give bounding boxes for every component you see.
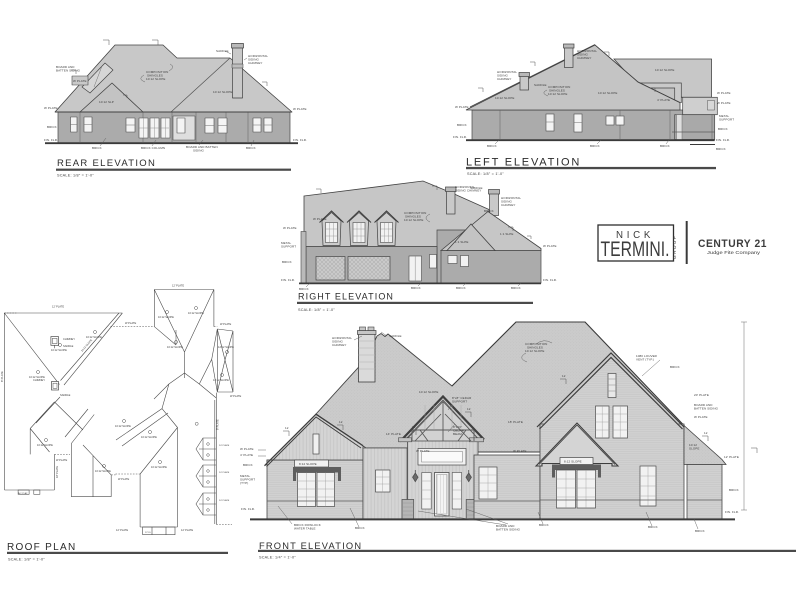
svg-text:18' PLATE: 18' PLATE — [55, 466, 59, 478]
svg-text:4' PLATE: 4' PLATE — [240, 453, 253, 457]
svg-text:LEFT ELEVATION: LEFT ELEVATION — [466, 157, 581, 169]
svg-text:FIN. FLR.: FIN. FLR. — [241, 507, 255, 511]
svg-text:12:12 SLOPE: 12:12 SLOPE — [218, 345, 234, 349]
svg-text:SCALE: 1/4" = 1'-0": SCALE: 1/4" = 1'-0" — [259, 556, 296, 560]
svg-text:TERMINI.: TERMINI. — [601, 238, 670, 261]
svg-text:BRICK: BRICK — [729, 488, 739, 492]
svg-text:W PLATE: W PLATE — [44, 106, 58, 110]
svg-text:12: 12 — [562, 374, 566, 378]
svg-text:W PLATE: W PLATE — [416, 449, 430, 453]
svg-text:CHIMNEY: CHIMNEY — [577, 56, 592, 60]
svg-text:BRICK: BRICK — [299, 287, 309, 291]
svg-text:10:12 SLOPE: 10:12 SLOPE — [29, 375, 45, 379]
svg-text:BRICK: BRICK — [670, 365, 680, 369]
svg-text:FIN. FLR.: FIN. FLR. — [44, 138, 58, 142]
svg-text:BRICK: BRICK — [246, 146, 256, 150]
svg-text:12:12 SLOPE: 12:12 SLOPE — [213, 378, 229, 382]
svg-text:4' PLATE: 4' PLATE — [657, 98, 670, 102]
svg-text:FRONT ELEVATION: FRONT ELEVATION — [259, 541, 362, 551]
svg-text:10:12 SLOPE: 10:12 SLOPE — [495, 96, 514, 100]
svg-text:W PLATE: W PLATE — [293, 107, 307, 111]
svg-text:12: 12 — [704, 431, 708, 435]
svg-text:W PLATE: W PLATE — [513, 449, 527, 453]
svg-text:SUPPORT: SUPPORT — [281, 244, 296, 248]
svg-text:ROOF PLAN: ROOF PLAN — [7, 542, 77, 553]
svg-text:10:12 SLOPE: 10:12 SLOPE — [213, 90, 232, 94]
svg-text:10:12 SLOPE: 10:12 SLOPE — [188, 311, 204, 315]
svg-text:WATER TABLE: WATER TABLE — [294, 526, 316, 530]
svg-text:10:12 SLOPE: 10:12 SLOPE — [141, 435, 157, 439]
svg-text:BRICK: BRICK — [695, 529, 705, 533]
svg-text:12' PLATE: 12' PLATE — [172, 284, 184, 288]
svg-text:W PLATE: W PLATE — [717, 101, 731, 105]
svg-text:W PLATE: W PLATE — [220, 322, 231, 326]
svg-text:W PLATE: W PLATE — [717, 91, 731, 95]
svg-text:10:12 SLOPE: 10:12 SLOPE — [37, 443, 53, 447]
svg-text:Judge Fite Company: Judge Fite Company — [707, 250, 761, 256]
svg-text:10:12 SLOPE: 10:12 SLOPE — [525, 349, 544, 353]
svg-text:W PLATE: W PLATE — [240, 447, 254, 451]
svg-text:10:12 SLOPE: 10:12 SLOPE — [548, 92, 567, 96]
svg-text:CHIMNEY: CHIMNEY — [248, 61, 263, 65]
svg-text:12' PLATE: 12' PLATE — [52, 305, 64, 309]
svg-text:SADDLE: SADDLE — [60, 393, 71, 397]
svg-text:BRICK: BRICK — [92, 146, 102, 150]
svg-text:A/C PLAT.: A/C PLAT. — [18, 492, 28, 495]
svg-text:SCALE: 1/8" = 1'-0": SCALE: 1/8" = 1'-0" — [8, 558, 45, 562]
svg-text:VENT (TYP.): VENT (TYP.) — [636, 357, 654, 361]
svg-text:12: 12 — [339, 420, 343, 424]
svg-text:24' PLATE: 24' PLATE — [219, 444, 230, 447]
svg-text:SCALE: 1/8" = 1'-0": SCALE: 1/8" = 1'-0" — [57, 174, 94, 178]
svg-text:12' PLATE: 12' PLATE — [181, 528, 193, 532]
svg-text:BRICK: BRICK — [484, 209, 494, 213]
svg-text:(TYP): (TYP) — [240, 481, 248, 485]
svg-text:BRICK: BRICK — [456, 286, 466, 290]
svg-text:SADDLE: SADDLE — [534, 83, 547, 87]
svg-text:BRICK: BRICK — [355, 526, 365, 530]
svg-text:12' PLATE: 12' PLATE — [724, 455, 739, 459]
svg-text:12: 12 — [285, 426, 289, 430]
svg-text:SADDLE: SADDLE — [63, 344, 74, 348]
svg-text:W PLATE: W PLATE — [455, 105, 469, 109]
svg-text:10:12 SLOPE: 10:12 SLOPE — [51, 348, 67, 352]
svg-text:SADDLE: SADDLE — [389, 334, 402, 338]
svg-text:W PLATE: W PLATE — [283, 226, 297, 230]
svg-text:10:12 SLOPE: 10:12 SLOPE — [655, 68, 674, 72]
svg-text:12: 12 — [467, 407, 471, 411]
svg-text:W PLATE: W PLATE — [125, 321, 136, 325]
svg-text:BRICK: BRICK — [243, 463, 253, 467]
svg-text:RIGHT ELEVATION: RIGHT ELEVATION — [298, 292, 394, 302]
svg-text:BRICK: BRICK — [718, 127, 728, 131]
svg-text:8' PLATE: 8' PLATE — [216, 419, 220, 430]
svg-text:8:12 SLOPE: 8:12 SLOPE — [299, 462, 317, 466]
svg-text:10:12 SLOPE: 10:12 SLOPE — [419, 390, 438, 394]
svg-text:SADDLE: SADDLE — [470, 186, 483, 190]
svg-text:SUPPORT: SUPPORT — [452, 399, 467, 403]
svg-text:8:12 SLOPE: 8:12 SLOPE — [564, 460, 582, 464]
svg-text:10:12 SLOPE: 10:12 SLOPE — [115, 424, 131, 428]
svg-text:SUPPORT: SUPPORT — [719, 117, 734, 121]
svg-text:10:12 SLOPE: 10:12 SLOPE — [167, 345, 183, 349]
svg-text:BRICK: BRICK — [539, 523, 549, 527]
svg-text:10:12 SLOPE: 10:12 SLOPE — [86, 335, 102, 339]
svg-text:CHIMNEY: CHIMNEY — [63, 337, 75, 341]
svg-text:BRICK: BRICK — [511, 286, 521, 290]
svg-text:BATTEN SIDING: BATTEN SIDING — [694, 406, 719, 410]
svg-text:W PLATE: W PLATE — [543, 244, 557, 248]
svg-text:10:12 SLOPE: 10:12 SLOPE — [598, 91, 617, 95]
svg-text:10:12 SLOPE: 10:12 SLOPE — [404, 218, 423, 222]
svg-text:8' PLATE: 8' PLATE — [0, 371, 4, 382]
svg-text:CHIMNEY: CHIMNEY — [332, 343, 347, 347]
svg-text:W PLATE: W PLATE — [118, 477, 129, 481]
svg-text:14' PLATE: 14' PLATE — [386, 432, 401, 436]
svg-text:10:12 SLOPE: 10:12 SLOPE — [95, 469, 111, 473]
svg-text:24' PLATE: 24' PLATE — [219, 471, 230, 474]
svg-text:BRICK: BRICK — [47, 125, 57, 129]
svg-text:W PLATE: W PLATE — [56, 458, 67, 462]
svg-text:FIN. FLR.: FIN. FLR. — [293, 138, 307, 142]
svg-text:BRICK: BRICK — [716, 147, 726, 151]
svg-text:BEAM: BEAM — [453, 432, 462, 436]
svg-text:SIDING: SIDING — [193, 148, 205, 152]
svg-text:SCALE: 1/8" = 1'-0": SCALE: 1/8" = 1'-0" — [298, 308, 335, 312]
svg-text:BRICK: BRICK — [590, 144, 600, 148]
svg-text:20' PLATE: 20' PLATE — [694, 393, 709, 397]
svg-text:18' PLATE: 18' PLATE — [508, 420, 523, 424]
svg-text:BATTEN SIDING: BATTEN SIDING — [56, 68, 81, 72]
svg-text:FIN. FLR.: FIN. FLR. — [725, 510, 739, 514]
svg-text:24' PLATE: 24' PLATE — [219, 499, 230, 502]
svg-text:CHIMNEY: CHIMNEY — [501, 203, 516, 207]
svg-text:BRICK: BRICK — [648, 525, 658, 529]
svg-text:BRICK: BRICK — [660, 144, 670, 148]
svg-text:SADDLE: SADDLE — [216, 49, 229, 53]
svg-text:BRICK: BRICK — [411, 286, 421, 290]
svg-text:GROUP: GROUP — [672, 235, 677, 259]
svg-text:12' FL: 12' FL — [145, 532, 152, 534]
svg-text:CENTURY 21: CENTURY 21 — [698, 238, 767, 250]
svg-text:FIN. FLR.: FIN. FLR. — [281, 278, 295, 282]
svg-text:FIN. FLR.: FIN. FLR. — [543, 278, 557, 282]
svg-text:W PLATE: W PLATE — [230, 394, 241, 398]
svg-text:W PLATE: W PLATE — [313, 217, 327, 221]
svg-text:10:12 SLP: 10:12 SLP — [99, 100, 114, 104]
svg-text:12: 12 — [412, 425, 416, 429]
svg-text:FIN. FLR.: FIN. FLR. — [453, 135, 467, 139]
svg-text:REAR ELEVATION: REAR ELEVATION — [57, 158, 156, 169]
svg-text:BRICK: BRICK — [457, 123, 467, 127]
svg-text:BRICK: BRICK — [487, 144, 497, 148]
svg-text:W PLATE: W PLATE — [73, 79, 87, 83]
svg-text:12' PLATE: 12' PLATE — [116, 528, 128, 532]
svg-text:10:12 SLOPE: 10:12 SLOPE — [158, 315, 174, 319]
svg-text:SCALE: 1/8" = 1'-0": SCALE: 1/8" = 1'-0" — [467, 172, 504, 176]
svg-text:BRICK: BRICK — [282, 260, 292, 264]
svg-text:1:1 SLPE: 1:1 SLPE — [455, 240, 468, 244]
svg-text:CHIMNEY: CHIMNEY — [497, 77, 512, 81]
svg-text:BRICK COLUMN: BRICK COLUMN — [141, 146, 165, 150]
svg-text:1:1 SLPE: 1:1 SLPE — [500, 232, 513, 236]
svg-text:10:12 SLOPE: 10:12 SLOPE — [151, 465, 167, 469]
svg-text:SLOPE: SLOPE — [689, 446, 700, 450]
svg-text:BATTEN SIDING: BATTEN SIDING — [496, 527, 521, 531]
svg-text:W PLATE: W PLATE — [694, 415, 708, 419]
svg-text:FIN. FLR.: FIN. FLR. — [716, 138, 730, 142]
svg-text:10:12 SLOPE: 10:12 SLOPE — [146, 77, 165, 81]
